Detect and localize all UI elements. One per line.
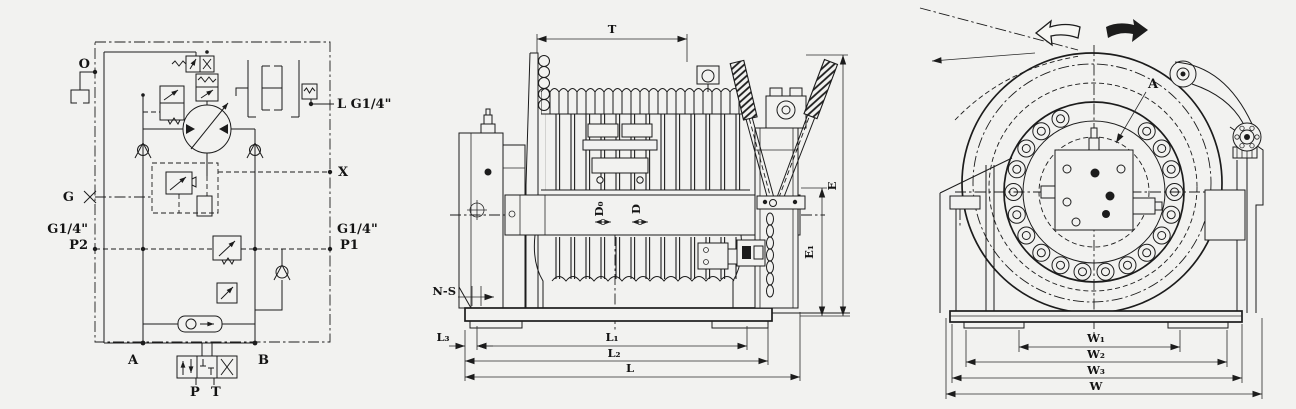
dim-label-w: W — [1089, 379, 1104, 393]
reducing-valve-symbol — [141, 86, 184, 124]
gauge-port-cross — [84, 191, 96, 203]
dim-label-e1: E₁ — [802, 245, 816, 259]
drum-brake-section — [541, 66, 750, 190]
counterbalance-valve-symbol — [196, 74, 218, 105]
front-base — [465, 308, 850, 328]
port-label-p: P — [190, 385, 200, 400]
dim-label-w3: W₃ — [1086, 363, 1105, 377]
technical-drawing-sheet: O G G1/4" P2 L G1/4" X G1/4" P1 A B P T — [0, 0, 1296, 409]
port-label-g: G — [63, 190, 74, 205]
pilot-valve-symbol — [172, 50, 214, 72]
port-label-p2: P2 — [69, 238, 88, 253]
drawing-canvas: O G G1/4" P2 L G1/4" X G1/4" P1 A B P T — [0, 0, 1296, 409]
dimension-W2: W₂ — [966, 347, 1227, 362]
hand-lever-grip — [804, 60, 838, 119]
hydraulic-schematic: O G G1/4" P2 L G1/4" X G1/4" P1 A B P T — [47, 42, 391, 400]
dimension-L1: L₁ — [477, 330, 747, 346]
port-label-l: L G1/4" — [337, 97, 391, 112]
port-label-p2-size: G1/4" — [47, 222, 88, 237]
dim-label-ns: N-S — [432, 284, 456, 298]
drum-lower-ropes — [534, 235, 742, 308]
winch-front-view: D₀ D — [432, 22, 850, 381]
motor-mounting-plate — [1039, 128, 1162, 247]
port-label-x: X — [338, 165, 349, 180]
dimension-W3: W₃ — [952, 363, 1242, 378]
band-brake-tensioner — [1170, 61, 1261, 151]
dimension-T: T — [537, 22, 687, 62]
dim-label-d: D — [629, 204, 643, 214]
port-label-t: T — [211, 385, 221, 400]
dim-label-l1: L₁ — [605, 330, 618, 344]
multidisc-brake-symbol — [236, 60, 334, 117]
dim-label-e: E — [825, 181, 839, 190]
pilot-control-group — [152, 163, 218, 216]
relief-valve-symbol — [213, 236, 241, 264]
port-label-o: O — [79, 57, 90, 72]
detail-label-a: A — [1147, 77, 1159, 92]
rotation-ccw-arrow-icon — [1036, 21, 1080, 45]
dimension-W: W — [946, 379, 1262, 394]
detail-callout-A: A — [1116, 77, 1159, 143]
drum-rope-band — [541, 89, 748, 115]
crosshair-mark-icon — [467, 200, 487, 220]
winch-side-view: A W₁ W₂ W₃ W — [920, 8, 1263, 399]
dimension-W1: W₁ — [1019, 331, 1180, 347]
dimension-L: L — [465, 361, 800, 377]
rotation-arrows — [1036, 19, 1148, 45]
dim-label-w1: W₁ — [1086, 331, 1105, 345]
dim-label-l2: L₂ — [607, 346, 620, 360]
port-label-p1: P1 — [340, 238, 359, 253]
rotation-cw-arrow-icon — [1106, 19, 1148, 42]
dim-label-t: T — [608, 22, 617, 36]
directional-valve-symbol — [177, 343, 237, 385]
dim-label-l: L — [626, 361, 634, 375]
shuttle-valve-symbol — [143, 316, 255, 332]
dim-label-l3: L₃ — [436, 330, 449, 344]
hydraulic-motor-symbol — [183, 103, 231, 153]
dimension-L2: L₂ — [465, 346, 768, 361]
check-valve-symbols — [135, 143, 263, 158]
dim-label-w2: W₂ — [1086, 347, 1105, 361]
rope-direction-line — [932, 53, 1035, 61]
dim-label-d0: D₀ — [592, 201, 606, 216]
side-base — [950, 311, 1242, 328]
port-label-b: B — [258, 353, 269, 368]
port-label-p1-size: G1/4" — [337, 222, 378, 237]
port-label-a: A — [127, 353, 139, 368]
